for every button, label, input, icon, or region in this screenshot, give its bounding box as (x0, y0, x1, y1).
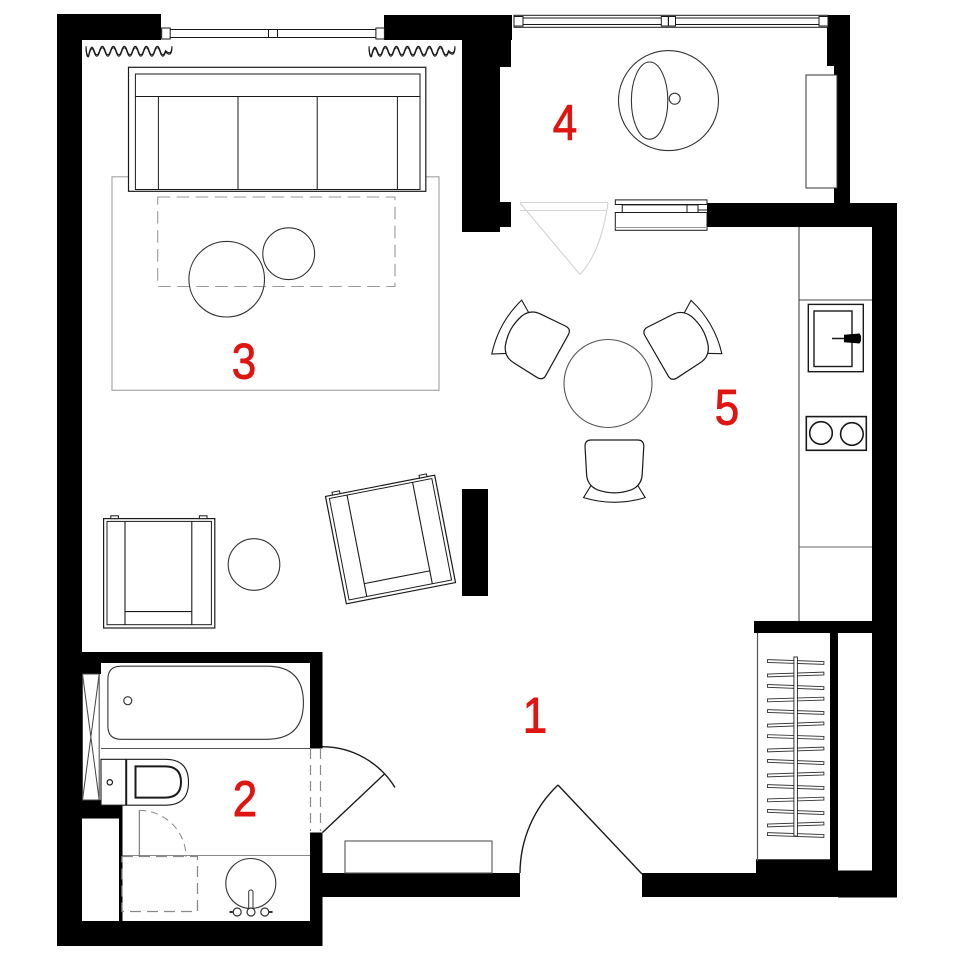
svg-text:1: 1 (523, 687, 547, 743)
svg-text:5: 5 (715, 379, 739, 435)
svg-text:4: 4 (553, 94, 577, 150)
svg-text:2: 2 (233, 770, 257, 826)
svg-text:3: 3 (232, 333, 256, 389)
